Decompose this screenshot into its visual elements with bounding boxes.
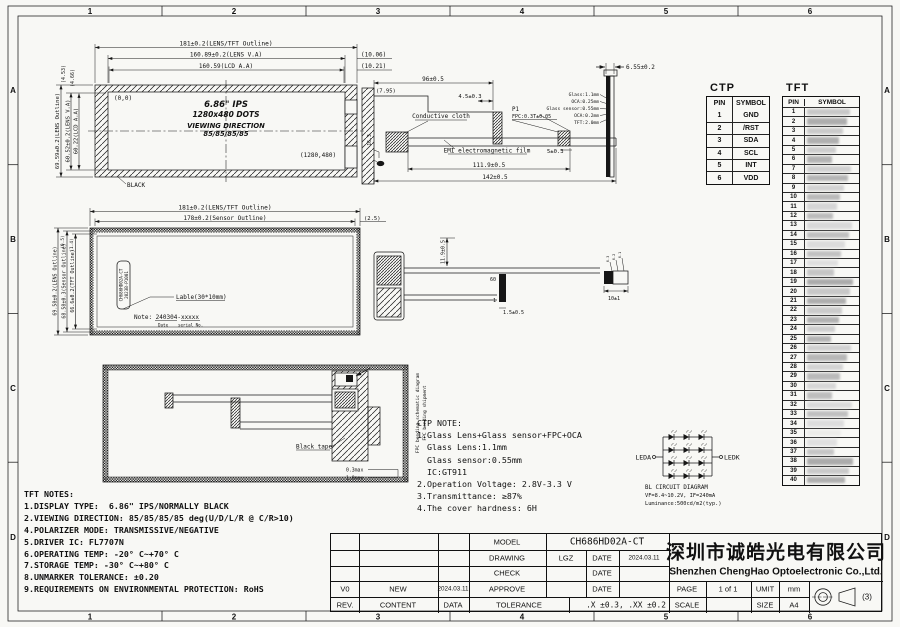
note-line: IC:GT911 — [417, 466, 582, 478]
tft-row: 6 — [783, 154, 859, 163]
dim-lcd-aa-width: 160.59(LCD A.A) — [199, 63, 253, 70]
led-symbol — [684, 460, 690, 466]
zone-row-a: A — [10, 86, 16, 95]
dim-sensor-width: 178±0.2(Sensor Outline) — [183, 215, 266, 222]
redacted-symbol — [807, 232, 849, 238]
panel-size-label: 6.86" IPS — [204, 100, 248, 110]
led-symbol — [675, 431, 678, 434]
zone-col-5: 5 — [664, 7, 669, 16]
led-symbol — [669, 460, 675, 466]
divider — [569, 597, 570, 613]
serial-note: Note: 240304-xxxxx — [134, 314, 199, 321]
divider — [331, 581, 883, 582]
note-line: CTP NOTE: — [417, 417, 582, 429]
redacted-symbol — [807, 175, 848, 181]
redacted-symbol — [807, 458, 853, 464]
rev-label: REV. — [337, 601, 354, 610]
divider — [331, 550, 669, 551]
tft-header-symbol: SYMBOL — [805, 99, 859, 106]
redacted-symbol — [807, 307, 842, 313]
tft-table: TFT PIN SYMBOL 1234567891011121314151617… — [782, 82, 860, 486]
note-line: Glass sensor:0.55mm — [417, 454, 582, 466]
tft-row: 9 — [783, 183, 859, 192]
redacted-symbol — [807, 222, 852, 228]
dim-lens-va-width: 160.89±0.2(LENS V.A) — [190, 52, 262, 59]
dim-top-466: (4.66) — [70, 69, 76, 87]
divider — [469, 534, 470, 613]
dim-10max: 1.0max — [346, 476, 363, 482]
redacted-symbol — [807, 336, 831, 342]
zone-row-c: C — [10, 384, 16, 393]
bl-caption: BL CIRCUIT DIAGRAM — [645, 485, 708, 491]
tft-row: 25 — [783, 334, 859, 343]
led-symbol — [686, 456, 689, 459]
led-symbol — [690, 444, 693, 447]
back-view: Black tape FPC bending schematic diagram… — [103, 365, 428, 482]
note-line: 7.STORAGE TEMP: -30° C~+80° C — [24, 560, 294, 572]
projection-angle-label: (3) — [862, 593, 872, 602]
date-label-2: DATE — [592, 569, 611, 578]
drawing-author: LGZ — [559, 553, 574, 562]
led-symbol — [684, 473, 690, 479]
redacted-symbol — [807, 402, 852, 408]
dim-25: (2.5) — [364, 216, 381, 222]
redacted-symbol — [807, 477, 845, 483]
zone-col-2: 2 — [232, 7, 237, 16]
bl-luminance: Luminance:500cd/m2(typ.) — [645, 501, 722, 507]
date-label-3: DATE — [592, 585, 611, 594]
tft-notes: TFT NOTES:1.DISPLAY TYPE: 6.86" IPS/NORM… — [24, 489, 294, 596]
led-symbol — [684, 434, 690, 440]
zone-row-a2: A — [884, 86, 890, 95]
tft-row: 33 — [783, 409, 859, 418]
led-symbol — [686, 443, 689, 446]
dim-gap-1021: (10.21) — [361, 63, 386, 70]
tft-row: 34 — [783, 418, 859, 427]
dim-03max: 0.3max — [346, 468, 363, 474]
ctp-table-title: CTP — [710, 82, 770, 94]
zone-row-d: D — [10, 533, 16, 542]
company-name-cn: 深圳市诚皓光电有限公司 — [666, 538, 886, 565]
tft-row: 12 — [783, 211, 859, 220]
note-line: 4.The cover hardness: 6H — [417, 502, 582, 514]
check-label: CHECK — [494, 569, 520, 578]
zone-col-5b: 5 — [664, 613, 669, 622]
title-block: V0 NEW 2024.03.11 REV. CONTENT DATA MODE… — [330, 533, 882, 612]
tft-row: 35 — [783, 428, 859, 437]
ctp-table-body: 1GND2/RST3SDA4SCL5INT6VDD — [707, 109, 769, 183]
dim-96: 96±0.5 — [422, 76, 444, 83]
dim-163: 16.3 — [367, 134, 373, 146]
black-bezel-label: BLACK — [127, 182, 145, 189]
led-symbol — [669, 447, 675, 453]
size-label: SIZE — [757, 601, 774, 610]
redacted-symbol — [807, 392, 832, 398]
fpc-stack-1: 0.3 — [606, 256, 610, 263]
tft-row: 7 — [783, 164, 859, 173]
led-grid — [663, 430, 712, 479]
model-label: MODEL — [494, 538, 521, 547]
zone-col-1b: 1 — [88, 613, 93, 622]
dim-45: 4.5±0.3 — [458, 94, 481, 100]
conductive-cloth-label: Conductive cloth — [412, 113, 470, 120]
tft-row: 4 — [783, 135, 859, 144]
serial-note-date: Date — [158, 323, 169, 328]
fpc-pin60-label: 60 — [490, 277, 496, 283]
zone-col-3: 3 — [376, 7, 381, 16]
dim-gap-1006: (10.06) — [361, 52, 386, 59]
tft-row: 11 — [783, 201, 859, 210]
redacted-symbol — [807, 411, 848, 417]
led-symbol — [675, 470, 678, 473]
redacted-symbol — [807, 468, 849, 474]
redacted-symbol — [807, 269, 834, 275]
ctp-row: 6VDD — [707, 171, 769, 183]
tft-row: 38 — [783, 456, 859, 465]
led-symbol — [690, 431, 693, 434]
p1-connector-label: P1 — [512, 107, 519, 113]
led-symbol — [684, 447, 690, 453]
panel-resolution-label: 1280x480 DOTS — [192, 110, 259, 119]
dim-1119: 111.9±0.5 — [473, 162, 506, 169]
scale-label: SCALE — [675, 601, 700, 610]
redacted-symbol — [807, 345, 851, 351]
redacted-symbol — [807, 203, 837, 209]
redacted-symbol — [807, 430, 841, 436]
dim-fpc-10: 10±1 — [608, 296, 620, 302]
stack-oca2: OCA:0.2mm — [574, 113, 599, 119]
leda-label: LEDA — [635, 454, 651, 462]
black-tape-label: Black tape — [296, 444, 333, 451]
stack-glass: Glass:1.1mm — [569, 92, 600, 98]
redacted-symbol — [807, 373, 840, 379]
bl-vf-if: VF=8.4~10.2V, IF=240mA — [645, 493, 716, 499]
zone-row-c2: C — [884, 384, 890, 393]
tft-row: 10 — [783, 192, 859, 201]
tft-row: 16 — [783, 249, 859, 258]
redacted-symbol — [807, 194, 840, 200]
third-angle-projection-icon — [811, 583, 861, 611]
sensor-view: 181±0.2(LENS/TFT Outline) 178±0.2(Sensor… — [53, 205, 387, 336]
stack-sensor: Glass sensor:0.55mm — [546, 106, 599, 112]
pixel-corner: (1280,480) — [300, 152, 336, 159]
dim-top-05: (0.5) — [60, 235, 66, 249]
led-symbol — [671, 430, 674, 433]
ctp-header-symbol: SYMBOL — [733, 100, 769, 107]
ctp-row: 2/RST — [707, 122, 769, 134]
fpc-stack-3: 0.1 — [618, 252, 622, 259]
dim-thickness: 6.55±0.2 — [626, 64, 655, 71]
drawing-label: DRAWING — [489, 553, 525, 562]
zone-col-6: 6 — [808, 7, 813, 16]
redacted-symbol — [807, 279, 853, 285]
dim-outline-height: 69.59±0.2(LENS Outline) — [55, 93, 61, 169]
stack-tft: TFT:2.0mm — [574, 120, 599, 126]
note-line: 3.Transmittance: ≥87% — [417, 490, 582, 502]
approve-label: APPROVE — [489, 585, 525, 594]
dim-top-453: (4.53) — [61, 65, 67, 83]
tft-row: 36 — [783, 437, 859, 446]
led-symbol — [671, 469, 674, 472]
zone-col-2b: 2 — [232, 613, 237, 622]
led-symbol — [701, 443, 704, 446]
note-line: 1.Glass Lens+Glass sensor+FPC+OCA — [417, 429, 582, 441]
zone-col-6b: 6 — [808, 613, 813, 622]
note-line: 8.UNMARKER TOLERANCE: ±0.20 — [24, 572, 294, 584]
redacted-symbol — [807, 213, 833, 219]
content-label: CONTENT — [380, 601, 416, 610]
dim-795: (7.95) — [376, 89, 396, 95]
led-symbol — [705, 457, 708, 460]
note-line: 5.DRIVER IC: FL7707N — [24, 537, 294, 549]
serial-note-serial: serial No. — [178, 323, 203, 328]
zone-col-4b: 4 — [520, 613, 525, 622]
led-symbol — [671, 443, 674, 446]
rev-version: V0 — [340, 585, 349, 594]
redacted-symbol — [807, 137, 839, 143]
redacted-symbol — [807, 118, 847, 124]
tft-row: 28 — [783, 362, 859, 371]
tft-row: 24 — [783, 324, 859, 333]
dim-outline-width: 181±0.2(LENS/TFT Outline) — [179, 41, 272, 48]
tft-row: 30 — [783, 381, 859, 390]
tft-row: 15 — [783, 239, 859, 248]
redacted-symbol — [807, 147, 836, 153]
tft-row: 20 — [783, 286, 859, 295]
redacted-symbol — [807, 317, 839, 323]
divider — [331, 566, 669, 567]
redacted-symbol — [807, 383, 836, 389]
p1-fpc-spec: FPC:0.3T±0.05 — [512, 114, 551, 120]
dim-lcd-aa-height: 60.22(LCD A.A) — [74, 108, 80, 154]
redacted-symbol — [807, 354, 847, 360]
tft-row: 37 — [783, 447, 859, 456]
redacted-symbol — [807, 326, 835, 332]
dim-142: 142±0.5 — [482, 174, 508, 181]
label-callout: Lable(30*10mm) — [176, 294, 227, 301]
redacted-symbol — [807, 420, 844, 426]
led-symbol — [699, 434, 705, 440]
rev-content-value: NEW — [389, 585, 407, 594]
tft-row: 40 — [783, 475, 859, 484]
ctp-row: 3SDA — [707, 134, 769, 146]
drawing-date: 2024.03.11 — [628, 554, 659, 561]
note-line: 6.OPERATING TEMP: -20° C~+70° C — [24, 549, 294, 561]
drawing-sheet: 1 2 3 4 5 6 1 2 3 4 5 6 A B C D A B C D — [0, 0, 900, 627]
redacted-symbol — [807, 128, 843, 134]
led-symbol — [690, 470, 693, 473]
ctp-header-row: PIN SYMBOL — [707, 97, 769, 109]
led-symbol — [705, 431, 708, 434]
front-view: 181±0.2(LENS/TFT Outline) 160.89±0.2(LEN… — [55, 41, 392, 190]
fpc-stack-2: 0.2 — [612, 254, 616, 261]
model-sticker-line2: 2023B-P1001 — [124, 271, 129, 299]
redacted-symbol — [807, 288, 850, 294]
led-symbol — [671, 456, 674, 459]
led-symbol — [701, 456, 704, 459]
divider — [331, 597, 809, 598]
note-line: 1.DISPLAY TYPE: 6.86" IPS/NORMALLY BLACK — [24, 501, 294, 513]
redacted-symbol — [807, 364, 843, 370]
divider — [586, 550, 587, 597]
ctp-row: 4SCL — [707, 147, 769, 159]
viewing-angles-label: 85/85/85/85 — [203, 130, 249, 138]
tft-row: 23 — [783, 315, 859, 324]
bl-circuit: LEDA LEDK BL CIRCUIT DIAGRAM VF=8.4~10.2… — [635, 430, 739, 507]
unit-value: mm — [788, 585, 801, 594]
tft-row: 17 — [783, 258, 859, 267]
ctp-row: 5INT — [707, 159, 769, 171]
tolerance-label: TOLERANCE — [496, 601, 542, 610]
model-number: CH686HD02A-CT — [570, 537, 644, 548]
tft-row: 2 — [783, 116, 859, 125]
tft-table-title: TFT — [786, 82, 860, 94]
tft-row: 27 — [783, 352, 859, 361]
led-symbol — [669, 434, 675, 440]
dim-top-14: (1.4) — [69, 238, 75, 252]
redacted-symbol — [807, 449, 834, 455]
tft-row: 31 — [783, 390, 859, 399]
stack-oca1: OCA:0.25mm — [571, 99, 599, 105]
ctp-header-pin: PIN — [707, 97, 733, 109]
dim-sensor-height: 68.58±0.3(Sensor Outline) — [62, 243, 68, 318]
dim-fpc-vertical: 11.9±0.5 — [441, 240, 447, 264]
led-symbol — [705, 470, 708, 473]
ctp-table: CTP PIN SYMBOL 1GND2/RST3SDA4SCL5INT6VDD — [706, 82, 770, 185]
tft-row: 22 — [783, 305, 859, 314]
tft-row: 26 — [783, 343, 859, 352]
tft-row: 5 — [783, 145, 859, 154]
zone-col-1: 1 — [88, 7, 93, 16]
unit-label: UMIT — [756, 585, 774, 594]
redacted-symbol — [807, 298, 846, 304]
page-label: PAGE — [677, 585, 697, 594]
note-line: TFT NOTES: — [24, 489, 294, 501]
dim-outline-width-2: 181±0.2(LENS/TFT Outline) — [178, 205, 271, 212]
led-symbol — [699, 460, 705, 466]
tft-table-body: 1234567891011121314151617181920212223242… — [783, 107, 859, 485]
ledk-label: LEDK — [724, 454, 740, 462]
tft-row: 19 — [783, 277, 859, 286]
company-name-en: Shenzhen ChengHao Optoelectronic Co.,Ltd… — [669, 567, 882, 578]
date-label-1: DATE — [592, 553, 611, 562]
led-symbol — [675, 457, 678, 460]
redacted-symbol — [807, 241, 845, 247]
divider — [438, 534, 439, 613]
tft-row: 1 — [783, 107, 859, 116]
led-symbol — [699, 473, 705, 479]
zone-col-4: 4 — [520, 7, 525, 16]
divider — [619, 550, 620, 597]
tft-row: 14 — [783, 230, 859, 239]
tft-row: 29 — [783, 371, 859, 380]
viewing-direction-label: VIEWING DIRECTION — [187, 122, 265, 130]
tft-row: 18 — [783, 267, 859, 276]
tft-row: 8 — [783, 173, 859, 182]
divider — [359, 534, 360, 613]
dim-5: 5±0.3 — [547, 149, 564, 155]
pixel-origin: (0,0) — [114, 95, 132, 102]
tft-row: 3 — [783, 126, 859, 135]
edge-view: 6.55±0.2 Glass:1.1mm OCA:0.25mm Glass se… — [546, 63, 655, 177]
led-symbol — [705, 444, 708, 447]
tft-row: 13 — [783, 220, 859, 229]
emi-film-label: EMI electromagnetic film — [444, 148, 531, 155]
tft-row: 39 — [783, 466, 859, 475]
led-symbol — [686, 430, 689, 433]
note-line: 2.Operation Voltage: 2.8V-3.3 V — [417, 478, 582, 490]
redacted-symbol — [807, 109, 850, 115]
ctp-row: 1GND — [707, 109, 769, 121]
tft-row: 32 — [783, 400, 859, 409]
dim-lens-va-height: 60.52±0.2(LENS V.A) — [66, 100, 72, 163]
led-symbol — [699, 447, 705, 453]
size-value: A4 — [789, 601, 798, 610]
led-symbol — [669, 473, 675, 479]
redacted-symbol — [807, 166, 851, 172]
model-sticker-line1: CH686HD02A-CT — [119, 268, 124, 301]
dim-lens-height-2: 69.58±0.2(LENS Outline) — [53, 246, 59, 315]
tft-header-pin: PIN — [783, 99, 805, 106]
redacted-symbol — [807, 185, 844, 191]
divider — [809, 581, 810, 613]
tolerance-value: .X ±0.3, .XX ±0.2 — [586, 601, 666, 610]
note-line: 2.VIEWING DIRECTION: 85/85/85/85 deg(U/D… — [24, 513, 294, 525]
redacted-symbol — [807, 251, 841, 257]
led-symbol — [690, 457, 693, 460]
dim-fpc-15: 1.5±0.5 — [503, 310, 524, 316]
note-line: Glass Lens:1.1mm — [417, 441, 582, 453]
redacted-symbol — [807, 260, 838, 266]
led-symbol — [701, 430, 704, 433]
tft-row: 21 — [783, 296, 859, 305]
rev-date-value: 2024.03.11 — [437, 586, 468, 593]
zone-row-b2: B — [884, 235, 890, 244]
led-symbol — [675, 444, 678, 447]
page-value: 1 of 1 — [719, 585, 738, 594]
redacted-symbol — [807, 156, 832, 162]
tft-header-row: PIN SYMBOL — [783, 97, 859, 107]
fpc-pin1-label: 1 — [493, 298, 496, 304]
fpc-view: 60 1 11.9±0.5 1.5±0.5 10±1 0.3 0.2 0.1 — [374, 238, 628, 320]
led-symbol — [686, 469, 689, 472]
redacted-symbol — [807, 439, 837, 445]
note-line: 4.POLARIZER MODE: TRANSMISSIVE/NEGATIVE — [24, 525, 294, 537]
led-symbol — [701, 469, 704, 472]
zone-row-b: B — [10, 235, 16, 244]
dim-tft-height: 66.6±0.2(TFT Outline) — [70, 249, 76, 312]
note-line: 9.REQUIREMENTS ON ENVIRONMENTAL PROTECTI… — [24, 584, 294, 596]
ctp-note: CTP NOTE:1.Glass Lens+Glass sensor+FPC+O… — [417, 417, 582, 515]
zone-col-3b: 3 — [376, 613, 381, 622]
data-label: DATA — [444, 601, 463, 610]
